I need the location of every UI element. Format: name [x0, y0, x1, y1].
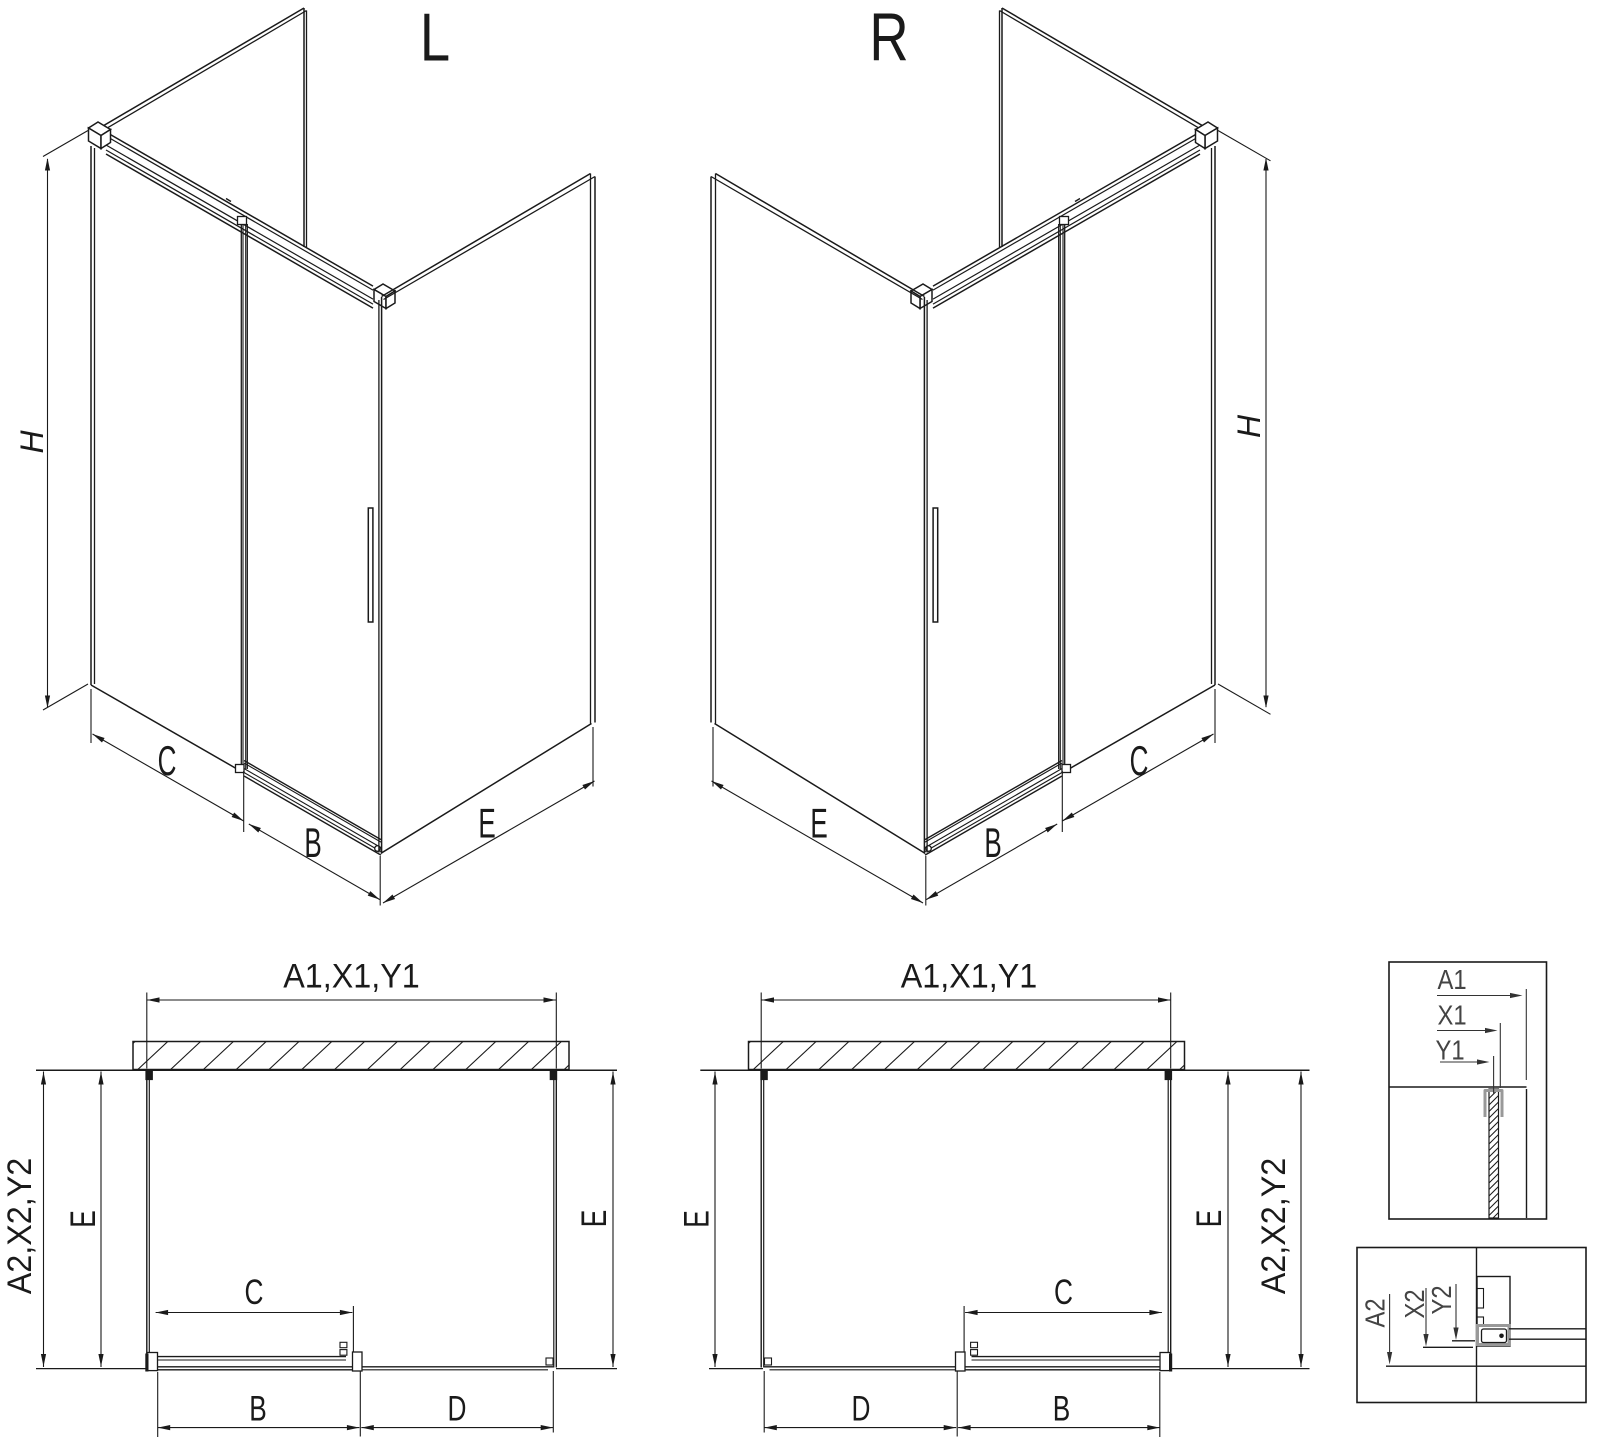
svg-text:C: C — [158, 738, 177, 785]
svg-text:Y2: Y2 — [1425, 1285, 1457, 1314]
svg-text:D: D — [852, 1389, 871, 1429]
svg-text:A2,X2,Y2: A2,X2,Y2 — [1255, 1158, 1293, 1294]
svg-text:B: B — [304, 820, 321, 867]
svg-text:B: B — [249, 1389, 267, 1429]
svg-text:E: E — [478, 800, 495, 847]
svg-text:A1,X1,Y1: A1,X1,Y1 — [283, 958, 419, 996]
svg-text:A2: A2 — [1359, 1298, 1391, 1327]
svg-text:Y1: Y1 — [1435, 1034, 1464, 1066]
svg-text:A1,X1,Y1: A1,X1,Y1 — [901, 958, 1037, 996]
svg-text:C: C — [1130, 738, 1149, 785]
svg-text:H: H — [14, 430, 50, 454]
svg-text:E: E — [574, 1210, 614, 1228]
svg-text:E: E — [1189, 1210, 1229, 1228]
svg-text:E: E — [810, 800, 827, 847]
svg-text:E: E — [63, 1210, 103, 1228]
svg-text:C: C — [245, 1272, 264, 1312]
svg-text:E: E — [677, 1210, 717, 1228]
svg-text:C: C — [1054, 1272, 1073, 1312]
svg-text:D: D — [448, 1389, 467, 1429]
svg-text:B: B — [984, 820, 1001, 867]
svg-text:R: R — [869, 0, 908, 76]
svg-text:H: H — [1231, 414, 1267, 438]
svg-text:A1: A1 — [1437, 963, 1466, 995]
svg-text:L: L — [420, 0, 450, 76]
svg-text:A2,X2,Y2: A2,X2,Y2 — [1, 1158, 39, 1294]
svg-text:B: B — [1053, 1389, 1071, 1429]
svg-text:X1: X1 — [1437, 999, 1466, 1031]
